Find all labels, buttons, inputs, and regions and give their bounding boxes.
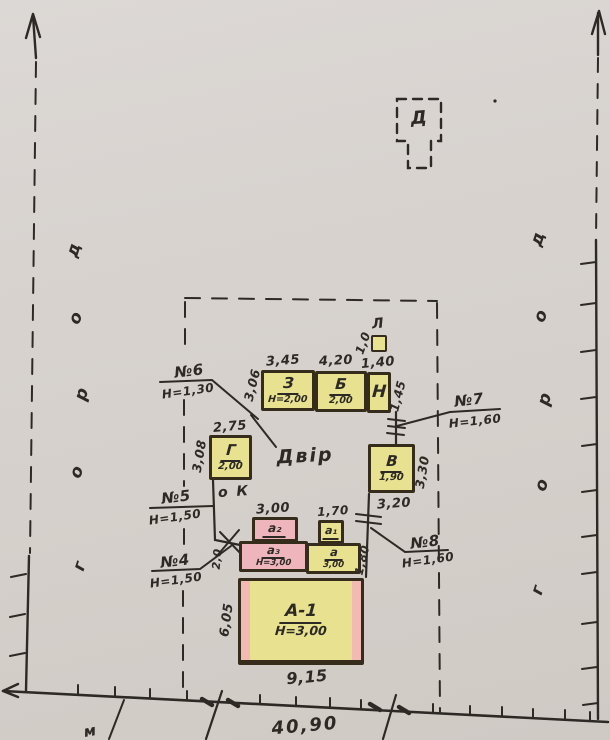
point8-label: №8 xyxy=(409,531,440,552)
north-arrow-right-icon xyxy=(592,11,605,55)
dim-v-bottom: 3,20 xyxy=(376,495,411,512)
building-l-label: Л xyxy=(371,315,385,332)
right-boundary-fence xyxy=(596,240,598,719)
point4-label: №4 xyxy=(159,550,190,571)
building-a1-small-label: а₁ xyxy=(322,525,339,540)
point5-label: №5 xyxy=(160,486,191,507)
site-plan-scan: З Н=2,00 Б 2,00 Н Г 2,00 В 1,90 а₂ а₁ а₃… xyxy=(0,0,610,740)
point5-leader xyxy=(150,506,213,508)
building-l xyxy=(371,335,387,352)
building-v: В 1,90 xyxy=(368,444,415,493)
courtyard-dash-top xyxy=(185,298,437,301)
building-g-height: 2,00 xyxy=(218,461,243,472)
building-n-label: Н xyxy=(371,384,386,402)
building-a2: а₂ xyxy=(252,517,298,542)
building-v-height: 1,90 xyxy=(379,472,404,483)
well-label: о К xyxy=(218,483,251,501)
building-b-label: Б xyxy=(330,377,353,396)
corner-stroke xyxy=(109,700,124,739)
dim-g-top: 2,75 xyxy=(212,418,247,436)
building-a3-height: Н=3,00 xyxy=(256,559,292,568)
dim-a2-top: 3,00 xyxy=(255,500,290,517)
building-g: Г 2,00 xyxy=(209,435,252,480)
ink-speck xyxy=(493,99,496,102)
dim-house-width: 9,15 xyxy=(286,666,329,689)
building-v-label: В xyxy=(380,454,403,473)
left-fence-ticks xyxy=(10,574,26,656)
survey-mark-right xyxy=(383,695,396,739)
north-arrow-left-icon xyxy=(26,14,40,58)
building-a2-label: а₂ xyxy=(263,522,287,538)
building-a3: а₃ Н=3,00 xyxy=(239,541,308,572)
building-z-height: Н=2,00 xyxy=(268,395,308,405)
building-a1-small: а₁ xyxy=(318,520,344,544)
building-house-height: Н=3,00 xyxy=(275,624,328,638)
left-boundary-dashed xyxy=(30,62,36,553)
dim-z-top: 3,45 xyxy=(265,352,300,369)
left-boundary-fence xyxy=(26,556,29,691)
building-d-label: Д xyxy=(410,107,428,129)
house-right-shade xyxy=(352,581,361,660)
building-z: З Н=2,00 xyxy=(261,370,315,411)
house-left-shade xyxy=(241,581,250,660)
point6-label: №6 xyxy=(173,360,204,381)
courtyard-dash-right xyxy=(437,303,440,712)
point7-label: №7 xyxy=(453,389,484,410)
dim-a1-top: 1,70 xyxy=(317,503,350,519)
yard-label: Двір xyxy=(276,444,334,469)
dim-n-top: 1,40 xyxy=(360,354,395,372)
right-boundary-dashed xyxy=(596,58,598,238)
building-z-label: З xyxy=(277,376,299,395)
building-b: Б 2,00 xyxy=(315,371,367,412)
building-g-label: Г xyxy=(220,443,241,462)
building-b-height: 2,00 xyxy=(329,396,353,406)
survey-mark-left xyxy=(206,691,222,739)
building-a-height: 3,00 xyxy=(323,561,345,570)
building-house-label: А-1 xyxy=(279,603,323,624)
dim-b-top: 4,20 xyxy=(319,353,354,370)
building-house-a1: А-1 Н=3,00 xyxy=(238,578,364,665)
dim-a3-side: 2,0 xyxy=(210,548,225,570)
